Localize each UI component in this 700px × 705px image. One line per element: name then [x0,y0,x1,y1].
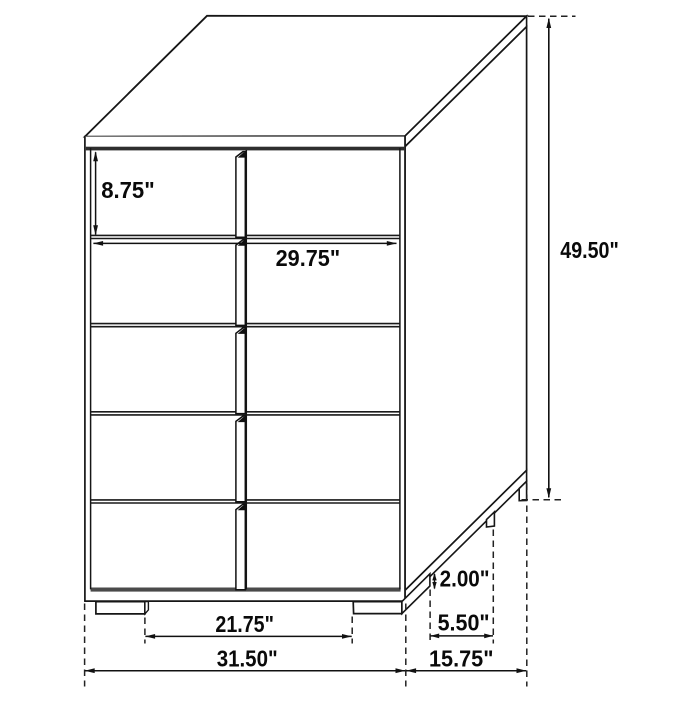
svg-text:8.75": 8.75" [101,177,155,203]
svg-text:21.75": 21.75" [215,611,274,637]
svg-text:15.75": 15.75" [429,646,494,672]
svg-text:31.50": 31.50" [217,646,278,672]
svg-text:2.00": 2.00" [440,566,490,592]
svg-text:29.75": 29.75" [276,245,341,271]
svg-text:49.50": 49.50" [560,237,619,263]
svg-text:5.50": 5.50" [438,610,490,636]
